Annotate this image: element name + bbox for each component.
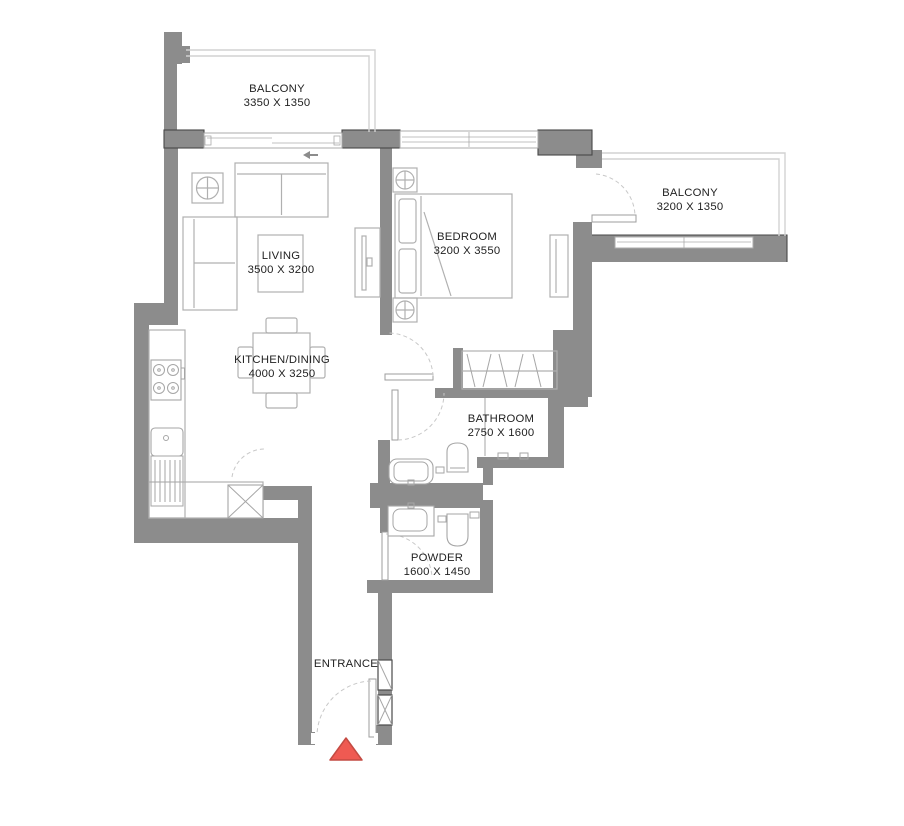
- wall-segment: [553, 330, 592, 397]
- wall-segment: [378, 592, 392, 660]
- room-label-bathroom-dims: 2750 X 1600: [468, 427, 535, 439]
- faucet-icon: [436, 467, 444, 473]
- corridor-left-wall: [298, 486, 312, 745]
- wall-slab: [134, 518, 298, 543]
- faucet-icon: [470, 512, 479, 518]
- room-label-entrance-name: ENTRANCE: [314, 658, 378, 670]
- closet-door-arc: [232, 449, 264, 477]
- tv-unit-detail: [367, 258, 372, 266]
- balcony-door-leaf: [592, 215, 636, 222]
- room-label-living-dims: 3500 X 3200: [248, 264, 315, 276]
- pillow: [399, 249, 416, 293]
- sliding-door-window: [204, 133, 342, 148]
- wall-segment: [367, 580, 493, 593]
- wall-segment: [378, 440, 390, 483]
- toilet: [447, 514, 468, 546]
- room-label-powder-dims: 1600 X 1450: [404, 566, 471, 578]
- wall-pier: [342, 130, 400, 148]
- faucet-icon: [438, 516, 446, 522]
- slide-direction-arrow: [303, 151, 318, 159]
- bedroom-door-arc: [388, 333, 433, 376]
- wardrobe-body: [462, 351, 557, 389]
- room-label-kitchen-name: KITCHEN/DINING: [234, 354, 330, 366]
- room-label-bedroom-dims: 3200 X 3550: [434, 245, 501, 257]
- wardrobe: [462, 351, 557, 389]
- wall-segment: [164, 32, 182, 64]
- powder-fixtures: [388, 503, 479, 546]
- wall-segment: [376, 725, 392, 745]
- divider-wall: [380, 148, 392, 335]
- wall-segment: [164, 62, 177, 135]
- room-label-balcony-right-name: BALCONY: [662, 187, 718, 199]
- wall-segment: [134, 303, 178, 325]
- entrance-door-leaf: [369, 679, 376, 737]
- dining-chair: [266, 393, 297, 408]
- wall-pier: [164, 130, 204, 148]
- wall-segment: [134, 325, 149, 518]
- door-jamb: [374, 733, 378, 744]
- room-label-bedroom-name: BEDROOM: [437, 231, 497, 243]
- wall-segment: [483, 457, 493, 485]
- room-label-powder-name: POWDER: [411, 552, 463, 564]
- room-label-balcony-top-dims: 3350 X 1350: [244, 97, 311, 109]
- floor-plan-svg: BALCONY 3350 X 1350 BALCONY 3200 X 1350 …: [0, 0, 904, 826]
- bathroom-door-arc: [398, 393, 444, 440]
- door-jamb: [311, 733, 315, 744]
- bathroom-fixtures: [389, 398, 528, 485]
- wall-segment: [182, 46, 190, 63]
- pillow: [399, 199, 416, 243]
- bathroom-door-leaf: [392, 390, 398, 440]
- room-label-balcony-top-name: BALCONY: [249, 83, 305, 95]
- balcony-door-arc: [596, 174, 635, 216]
- wall-segment: [576, 150, 602, 168]
- living-furniture: [183, 163, 380, 310]
- drainboard: [151, 456, 183, 506]
- dining-chair: [266, 318, 297, 333]
- wall-segment: [164, 148, 178, 313]
- wall-segment: [548, 407, 564, 460]
- kitchen-sink: [151, 428, 183, 456]
- room-label-balcony-right-dims: 3200 X 1350: [657, 201, 724, 213]
- dresser: [550, 235, 568, 297]
- entry-marker-triangle: [330, 738, 362, 760]
- room-label-kitchen-dims: 4000 X 3250: [249, 368, 316, 380]
- wall-segment: [370, 483, 483, 508]
- powder-door-leaf: [382, 532, 388, 580]
- room-label-living-name: LIVING: [262, 250, 301, 262]
- wall-segment: [480, 500, 493, 593]
- floor-plan-page: BALCONY 3350 X 1350 BALCONY 3200 X 1350 …: [0, 0, 904, 826]
- room-label-bathroom-name: BATHROOM: [468, 413, 534, 425]
- entrance-door-arc: [317, 681, 371, 734]
- wall-segment: [548, 393, 588, 407]
- tv-screen: [362, 236, 366, 290]
- bedroom-door-leaf: [385, 374, 433, 380]
